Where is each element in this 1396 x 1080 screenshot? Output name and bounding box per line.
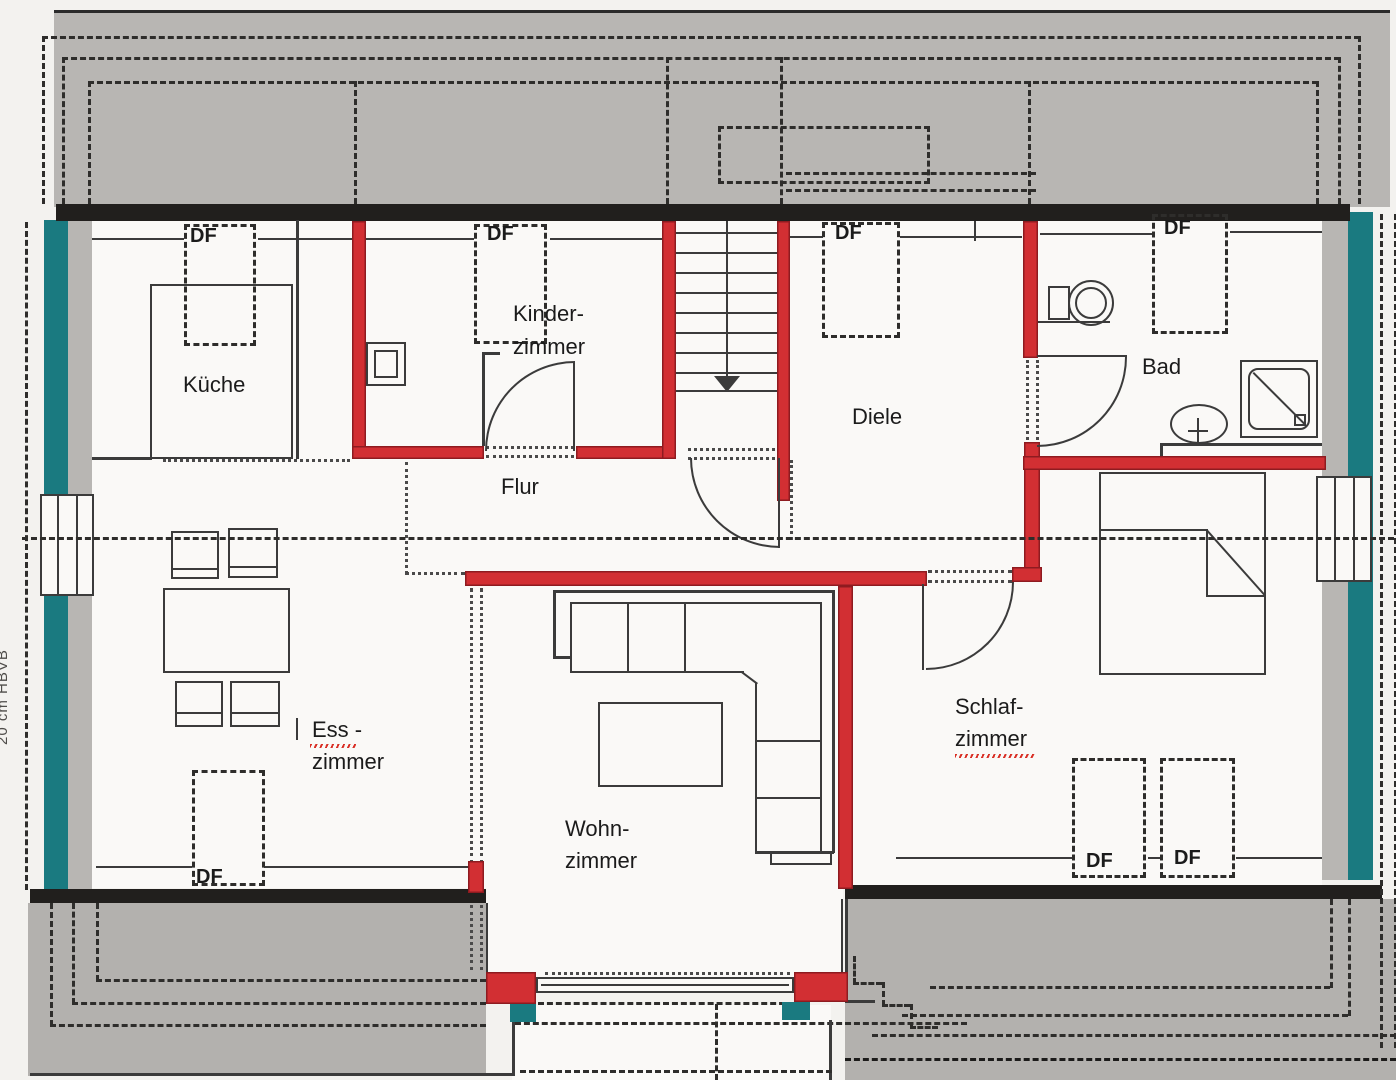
room-label-wohnzimmer-line1: Wohn- xyxy=(565,818,629,840)
door-gap-bad xyxy=(1026,360,1029,440)
door-gap-schlafzimmer xyxy=(928,570,1012,573)
bed-blanket-line xyxy=(1099,529,1208,531)
roof-step-dashed xyxy=(882,982,885,1006)
wall-red-bay-left xyxy=(486,972,536,1004)
window-jamb-line xyxy=(974,221,976,241)
roof-detail-dashed-line xyxy=(786,189,1036,192)
sofa-seat-divider xyxy=(755,740,822,742)
dining-chair xyxy=(230,681,280,727)
sink xyxy=(1170,404,1228,444)
sofa-seat-divider xyxy=(627,602,629,673)
roof-slope-dashed xyxy=(902,1014,1348,1017)
sill-line-top xyxy=(1040,233,1152,235)
roof-slope-dashed xyxy=(845,1058,1396,1061)
wall-red-stub-bottom-band xyxy=(468,861,484,893)
exterior-wall-band-bottom-left xyxy=(30,889,486,903)
sill-line-top xyxy=(1230,231,1322,233)
balcony-sliding-door-line xyxy=(541,984,789,986)
roof-edge-dashed-line xyxy=(62,57,65,204)
roof-slope-dashed xyxy=(72,903,75,1004)
dining-chair-line xyxy=(232,712,278,714)
wall-red-kinderzimmer-bottom-left xyxy=(352,446,484,459)
window-right-frame-line xyxy=(1353,478,1355,580)
stair-threshold-dotted xyxy=(790,460,793,540)
plan-outer-edge-bottom-left xyxy=(30,1073,514,1076)
roof-window-label: DF xyxy=(190,226,217,246)
wall-red-wohnzimmer-east xyxy=(838,586,853,889)
window-left-frame-line xyxy=(57,496,59,594)
sill-line-bottom xyxy=(264,866,470,868)
sofa-back-line xyxy=(553,590,834,593)
room-label-schlafzimmer-line1: Schlaf- xyxy=(955,696,1023,718)
roof-slope-dashed xyxy=(872,1034,1396,1037)
window-left-frame-line xyxy=(76,496,78,594)
sill-line-top xyxy=(258,238,474,240)
dining-chair-line xyxy=(173,568,217,570)
door-leaf-bad xyxy=(1037,355,1127,357)
roof-edge-dashed-line xyxy=(42,36,1360,39)
door-gap-kinderzimmer xyxy=(486,455,574,458)
room-label-esszimmer-line2: zimmer xyxy=(312,751,384,773)
room-label-kueche: Küche xyxy=(183,374,245,396)
wall-red-bad-bottom xyxy=(1023,456,1326,470)
wall-red-bad-west-upper xyxy=(1023,221,1038,358)
roof-slope-dashed xyxy=(50,1024,486,1027)
sofa-seat-divider xyxy=(684,602,686,673)
sink-tap-line xyxy=(1197,418,1199,446)
roof-edge-dashed-line xyxy=(42,36,45,204)
room-label-flur: Flur xyxy=(501,476,539,498)
sill-line-top xyxy=(790,236,823,238)
spellcheck-underline-schlafzimmer xyxy=(955,754,1035,758)
shower-drain xyxy=(1294,414,1306,426)
sofa-seat-top-line xyxy=(570,602,822,604)
bay-side-line-right xyxy=(841,899,843,973)
sill-line-bottom xyxy=(896,857,1072,859)
dining-chair-line xyxy=(177,712,221,714)
spellcheck-underline-ess xyxy=(310,744,358,748)
roof-step-dashed xyxy=(853,956,856,984)
wall-kinder-stub xyxy=(482,352,485,446)
open-boundary-flur-ess xyxy=(405,572,465,575)
coffee-table xyxy=(598,702,723,787)
sofa-outer-left xyxy=(553,590,556,658)
roof-height-dashed-line xyxy=(22,537,1394,540)
roof-slope-dashed xyxy=(1348,899,1351,1016)
roof-edge-dashed-line xyxy=(1316,81,1319,204)
wall-kueche-bottom-stub xyxy=(92,457,152,460)
open-boundary-ess-wohn xyxy=(470,588,473,864)
door-leaf-schlafzimmer xyxy=(922,584,924,670)
room-label-bad: Bad xyxy=(1142,356,1181,378)
balcony-door-hatch xyxy=(545,972,790,975)
sofa-seat-front-line xyxy=(570,671,744,673)
dining-table xyxy=(163,588,290,673)
wall-kinder-stub-cap xyxy=(482,352,500,355)
roof-slope-dashed xyxy=(50,903,53,1026)
roof-edge-dashed-line xyxy=(88,81,1318,84)
roof-overhang-dashed-left xyxy=(25,222,28,890)
roof-window-label: DF xyxy=(835,223,862,243)
terrace-edge-left xyxy=(512,1022,515,1076)
sofa-outer-right xyxy=(832,590,835,853)
wall-red-kinderzimmer-bottom-right xyxy=(576,446,676,459)
window-teal-bay-left xyxy=(510,1004,536,1022)
roof-window-label: DF xyxy=(487,224,514,244)
wall-projection-dashed xyxy=(1028,81,1031,204)
window-teal-bay-right xyxy=(782,1002,810,1020)
room-label-kinderzimmer-line1: Kinder- xyxy=(513,303,584,325)
wall-red-stairs-left xyxy=(662,221,676,459)
roof-overhang-dashed-right xyxy=(1380,214,1383,1048)
window-left xyxy=(40,494,94,596)
roof-window-label: DF xyxy=(1164,218,1191,238)
roof-step-dashed xyxy=(853,982,882,985)
stair-direction-arrow-icon xyxy=(714,376,740,392)
wall-red-diele-bottom xyxy=(465,571,927,586)
sofa-vertical-left-line xyxy=(755,683,757,853)
roof-edge-dashed-line xyxy=(1358,36,1361,204)
wall-projection-dashed xyxy=(666,57,669,204)
room-label-wohnzimmer-line2: zimmer xyxy=(565,850,637,872)
bath-counter-line xyxy=(1160,443,1322,446)
sink-tap-line xyxy=(1188,430,1208,432)
bay-corner-step-line xyxy=(845,1000,875,1003)
wall-projection-dotted xyxy=(480,905,483,970)
roof-area-bottom-right xyxy=(845,899,1396,1080)
room-label-diele: Diele xyxy=(852,406,902,428)
roof-slope-dashed xyxy=(72,1002,486,1005)
roof-detail-dashed-line xyxy=(786,172,1036,175)
roof-step-dashed xyxy=(910,1026,938,1029)
roof-slope-dashed xyxy=(96,979,486,982)
window-right xyxy=(1316,476,1372,582)
terrace-bottom-dashed xyxy=(520,1070,832,1073)
text-cursor-mark xyxy=(296,718,298,740)
wall-projection-dashed xyxy=(354,81,357,204)
bay-side-line-left xyxy=(486,903,488,973)
toilet-tank xyxy=(1048,286,1070,320)
roof-edge-dashed-line xyxy=(62,57,1340,60)
open-boundary-kueche-ess xyxy=(163,459,350,462)
room-label-schlafzimmer-line2: zimmer xyxy=(955,728,1027,750)
roof-edge-dashed-line xyxy=(1338,57,1341,204)
room-label-kinderzimmer-line2: zimmer xyxy=(513,336,585,358)
sill-line-bottom xyxy=(1236,857,1322,859)
roof-window-label: DF xyxy=(1174,848,1201,868)
sofa-armrest-left-line xyxy=(570,602,572,673)
dining-chair xyxy=(175,681,223,727)
stair-threshold-dotted xyxy=(688,448,775,451)
roof-slope-dashed xyxy=(538,1002,794,1005)
sill-line-bottom xyxy=(96,866,192,868)
door-leaf-kinderzimmer xyxy=(573,363,575,451)
bed-fold-horizontal xyxy=(1206,595,1266,597)
roof-slope-dashed xyxy=(930,986,1330,989)
stair-walk-line xyxy=(726,221,728,378)
roof-window-label: DF xyxy=(1086,851,1113,871)
wall-red-schlafzimmer-door-stub xyxy=(1012,567,1042,582)
sill-line-top xyxy=(550,238,662,240)
dining-chair-line xyxy=(230,566,276,568)
margin-note: 20 cm HBVB xyxy=(0,649,11,745)
dining-chair xyxy=(228,528,278,578)
roof-step-dashed xyxy=(882,1004,910,1007)
floor-plan-canvas: Küche Kinder- zimmer Diele Bad Flur Ess … xyxy=(0,0,1396,1080)
wall-projection-dotted xyxy=(470,905,473,970)
roof-edge-dashed-line xyxy=(88,81,91,204)
sofa-armrest-step xyxy=(553,656,570,659)
chimney-inner xyxy=(374,350,398,378)
bay-floor xyxy=(486,885,843,977)
sill-line-top xyxy=(92,238,184,240)
wall-red-bay-right xyxy=(794,972,848,1002)
sill-line-top xyxy=(900,236,1022,238)
door-leaf-flur-diele xyxy=(778,458,780,548)
exterior-wall-band-bottom-right xyxy=(845,885,1382,899)
sofa-seat-divider xyxy=(755,797,822,799)
roof-slope-dashed xyxy=(96,903,99,981)
chimney-projection-dashed-box xyxy=(718,126,930,184)
open-boundary-flur-ess xyxy=(405,462,408,574)
roof-slope-dashed xyxy=(515,1022,967,1025)
bed xyxy=(1099,472,1266,675)
window-right-frame-line xyxy=(1334,478,1336,580)
terrace-center-dashed xyxy=(715,1004,718,1080)
sofa-seat-right-line xyxy=(820,602,822,853)
toilet-bowl-inner xyxy=(1075,287,1107,319)
roof-window-label: DF xyxy=(196,867,223,887)
open-boundary-ess-wohn xyxy=(480,588,483,864)
room-label-esszimmer-line1: Ess - xyxy=(312,719,362,741)
roof-step-dashed xyxy=(910,1004,913,1028)
roof-slope-dashed xyxy=(1330,899,1333,988)
wall-kueche-right xyxy=(296,220,299,459)
sofa-foot-step xyxy=(770,851,832,865)
toilet-shelf-line xyxy=(1037,321,1110,323)
wall-red-kinderzimmer-left xyxy=(352,221,366,459)
